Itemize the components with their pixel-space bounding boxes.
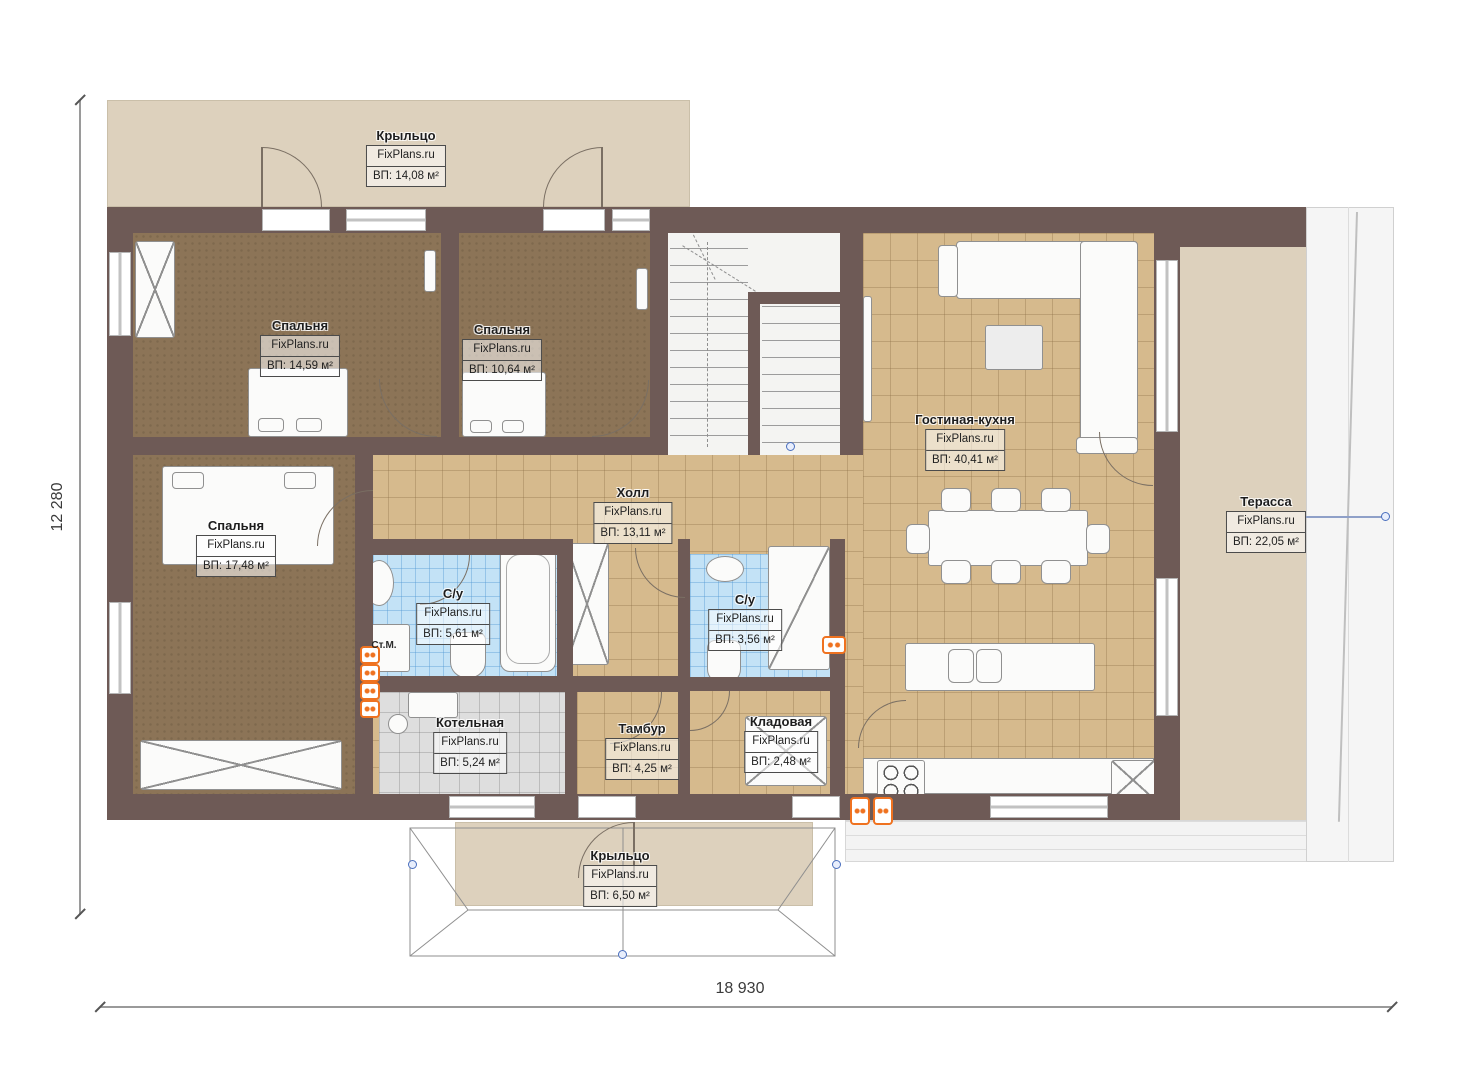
wall <box>365 539 573 555</box>
window <box>346 209 426 231</box>
room-area: ВП: 5,61 м² <box>417 624 489 645</box>
chair <box>1086 524 1110 554</box>
room-info-box: FixPlans.ru ВП: 14,08 м² <box>366 145 446 187</box>
wall <box>1180 233 1306 247</box>
room-info-box: FixPlans.ru ВП: 14,59 м² <box>260 335 340 377</box>
reference-dot <box>408 860 417 869</box>
sofa-armrest <box>938 245 958 297</box>
room-label-bedroom-3: Спальня FixPlans.ru ВП: 17,48 м² <box>196 518 276 577</box>
door-leaf <box>601 147 603 207</box>
brand-watermark: FixPlans.ru <box>434 733 506 753</box>
room-label-bedroom-1: Спальня FixPlans.ru ВП: 14,59 м² <box>260 318 340 377</box>
radiator <box>360 682 380 700</box>
room-name: Гостиная-кухня <box>915 412 1015 427</box>
radiator <box>873 797 893 825</box>
stairs-walk-line <box>707 242 708 447</box>
pillow <box>296 418 322 432</box>
brand-watermark: FixPlans.ru <box>594 503 671 523</box>
radiator <box>850 797 870 825</box>
wall <box>748 292 840 304</box>
room-label-hall: Холл FixPlans.ru ВП: 13,11 м² <box>593 485 672 544</box>
room-label-terrace: Терасса FixPlans.ru ВП: 22,05 м² <box>1226 494 1306 553</box>
room-info-box: FixPlans.ru ВП: 4,25 м² <box>605 738 679 780</box>
brand-watermark: FixPlans.ru <box>745 732 817 752</box>
room-area: ВП: 10,64 м² <box>463 360 541 381</box>
brand-watermark: FixPlans.ru <box>709 610 781 630</box>
window <box>990 796 1108 818</box>
room-name: Кладовая <box>744 714 818 729</box>
room-name: С/у <box>708 592 782 607</box>
room-info-box: FixPlans.ru ВП: 22,05 м² <box>1226 511 1306 553</box>
brand-watermark: FixPlans.ru <box>417 604 489 624</box>
chair <box>906 524 930 554</box>
wardrobe <box>135 241 175 338</box>
window <box>449 796 535 818</box>
chair <box>991 560 1021 584</box>
room-label-vestibule: Тамбур FixPlans.ru ВП: 4,25 м² <box>605 721 679 780</box>
room-name: Спальня <box>196 518 276 533</box>
pillow <box>172 472 204 489</box>
roof-overhang-right <box>1306 207 1394 862</box>
reference-dot <box>618 950 627 959</box>
wall <box>577 676 678 692</box>
room-area: ВП: 17,48 м² <box>197 556 275 577</box>
wall <box>678 677 690 794</box>
radiator <box>360 664 380 682</box>
room-name: Котельная <box>433 715 507 730</box>
room-area: ВП: 14,59 м² <box>261 356 339 377</box>
room-info-box: FixPlans.ru ВП: 6,50 м² <box>583 865 657 907</box>
room-label-porch-top: Крыльцо FixPlans.ru ВП: 14,08 м² <box>366 128 446 187</box>
room-label-bathroom-2: С/у FixPlans.ru ВП: 3,56 м² <box>708 592 782 651</box>
wall <box>830 539 845 794</box>
room-area: ВП: 3,56 м² <box>709 630 781 651</box>
chair <box>1041 560 1071 584</box>
room-name: Тамбур <box>605 721 679 736</box>
wall <box>565 676 577 794</box>
width-dimension-label: 18 930 <box>716 980 765 998</box>
brand-watermark: FixPlans.ru <box>261 336 339 356</box>
island-sink <box>976 649 1002 683</box>
window <box>109 602 131 694</box>
roof-overhang-line <box>1348 207 1349 862</box>
reference-dot <box>832 860 841 869</box>
coffee-table <box>985 325 1043 370</box>
room-info-box: FixPlans.ru ВП: 3,56 м² <box>708 609 782 651</box>
radiator <box>822 636 846 654</box>
window <box>612 209 650 231</box>
wall <box>840 233 863 455</box>
wall <box>107 437 668 455</box>
bathtub-inner <box>506 554 550 664</box>
dining-table <box>928 510 1088 566</box>
room-info-box: FixPlans.ru ВП: 40,41 м² <box>925 429 1005 471</box>
boiler-unit <box>388 714 408 734</box>
doorway <box>262 209 330 231</box>
floor-plan: Ст.М. 12 280 18 930 Крыл <box>0 0 1474 1080</box>
room-info-box: FixPlans.ru ВП: 13,11 м² <box>593 502 672 544</box>
terrace-reference-line <box>1306 516 1386 518</box>
wall <box>441 233 459 437</box>
room-info-box: FixPlans.ru ВП: 5,24 м² <box>433 732 507 774</box>
tv-cabinet <box>636 268 648 310</box>
washbasin <box>706 556 744 582</box>
dimension-line-vertical <box>79 100 81 915</box>
island-sink <box>948 649 974 683</box>
doorway <box>543 209 605 231</box>
room-label-living-kitchen: Гостиная-кухня FixPlans.ru ВП: 40,41 м² <box>915 412 1015 471</box>
wall <box>678 677 843 691</box>
room-area: ВП: 22,05 м² <box>1227 532 1305 553</box>
brand-watermark: FixPlans.ru <box>197 536 275 556</box>
room-name: Крыльцо <box>366 128 446 143</box>
room-name: Крыльцо <box>583 848 657 863</box>
pillow <box>502 420 524 433</box>
dimension-line-horizontal <box>100 1006 1392 1008</box>
terrace-window <box>1156 260 1178 432</box>
brand-watermark: FixPlans.ru <box>463 340 541 360</box>
room-label-boiler: Котельная FixPlans.ru ВП: 5,24 м² <box>433 715 507 774</box>
wall <box>748 292 760 455</box>
chair <box>941 560 971 584</box>
room-info-box: FixPlans.ru ВП: 5,61 м² <box>416 603 490 645</box>
stairs-flight-right <box>762 306 840 455</box>
tv-cabinet <box>424 250 436 292</box>
room-name: Спальня <box>462 322 542 337</box>
room-area: ВП: 5,24 м² <box>434 753 506 774</box>
brand-watermark: FixPlans.ru <box>367 146 445 166</box>
room-label-bedroom-2: Спальня FixPlans.ru ВП: 10,64 м² <box>462 322 542 381</box>
brand-watermark: FixPlans.ru <box>1227 512 1305 532</box>
wall <box>650 233 668 455</box>
terrace-window <box>1156 578 1178 716</box>
room-info-box: FixPlans.ru ВП: 2,48 м² <box>744 731 818 773</box>
wall <box>557 539 573 677</box>
height-dimension-label: 12 280 <box>49 483 67 532</box>
brand-watermark: FixPlans.ru <box>926 430 1004 450</box>
brand-watermark: FixPlans.ru <box>606 739 678 759</box>
room-name: Терасса <box>1226 494 1306 509</box>
room-area: ВП: 2,48 м² <box>745 752 817 773</box>
chair <box>941 488 971 512</box>
room-area: ВП: 14,08 м² <box>367 166 445 187</box>
window <box>109 252 131 336</box>
room-area: ВП: 13,11 м² <box>594 523 671 544</box>
room-area: ВП: 6,50 м² <box>584 886 656 907</box>
sofa-section <box>1080 241 1138 441</box>
washing-machine-label: Ст.М. <box>356 640 412 651</box>
wall <box>365 676 565 692</box>
doorway <box>578 796 636 818</box>
stairs-reference-dot <box>786 442 795 451</box>
pillow <box>258 418 284 432</box>
door-leaf <box>261 147 263 207</box>
pillow <box>470 420 492 433</box>
doorway <box>792 796 840 818</box>
brand-watermark: FixPlans.ru <box>584 866 656 886</box>
room-info-box: FixPlans.ru ВП: 10,64 м² <box>462 339 542 381</box>
pillow <box>284 472 316 489</box>
room-area: ВП: 40,41 м² <box>926 450 1004 471</box>
radiator <box>360 700 380 718</box>
room-label-porch-bottom: Крыльцо FixPlans.ru ВП: 6,50 м² <box>583 848 657 907</box>
tv-cabinet <box>863 296 872 422</box>
wardrobe <box>140 740 342 790</box>
reference-dot <box>1381 512 1390 521</box>
room-name: Холл <box>593 485 672 500</box>
room-name: Спальня <box>260 318 340 333</box>
room-label-bathroom-1: С/у FixPlans.ru ВП: 5,61 м² <box>416 586 490 645</box>
room-area: ВП: 4,25 м² <box>606 759 678 780</box>
room-name: С/у <box>416 586 490 601</box>
chair <box>991 488 1021 512</box>
room-label-storage: Кладовая FixPlans.ru ВП: 2,48 м² <box>744 714 818 773</box>
chair <box>1041 488 1071 512</box>
room-info-box: FixPlans.ru ВП: 17,48 м² <box>196 535 276 577</box>
